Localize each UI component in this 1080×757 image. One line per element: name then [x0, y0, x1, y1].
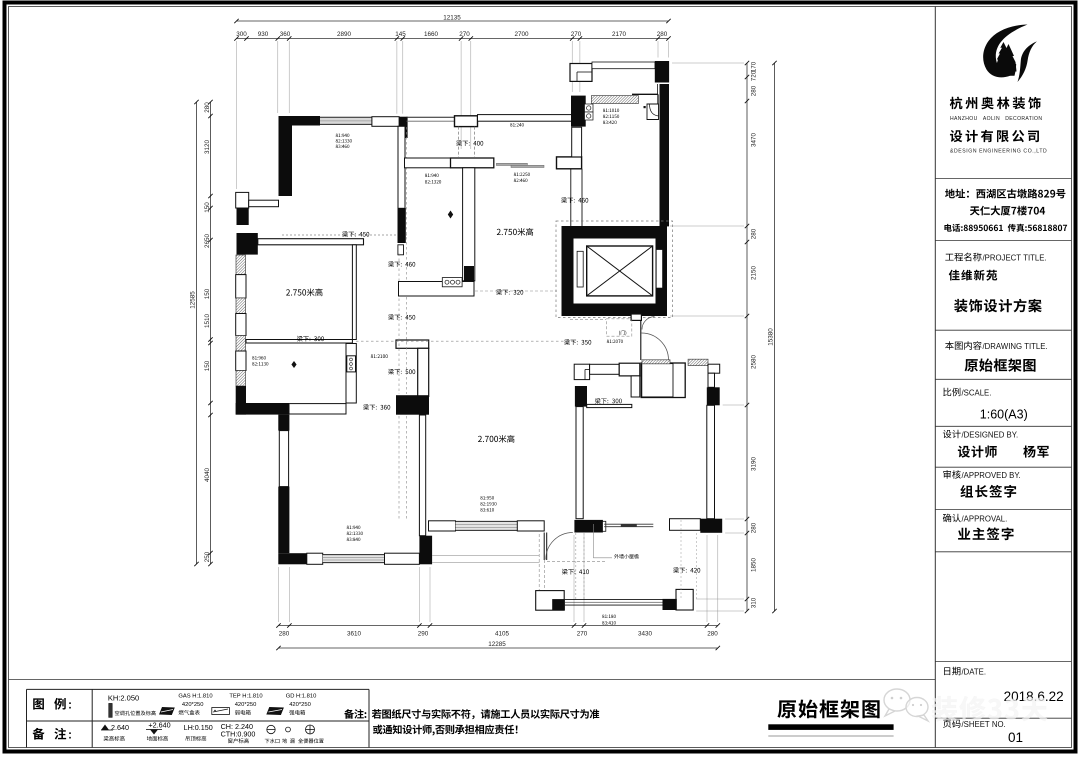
svg-text:280: 280: [707, 631, 718, 638]
svg-text:2700: 2700: [514, 31, 529, 38]
svg-text:270: 270: [571, 31, 582, 38]
svg-text:/APPROVED BY.: /APPROVED BY.: [962, 471, 1021, 480]
svg-text:3470: 3470: [751, 133, 758, 148]
svg-text:GD H:1.810: GD H:1.810: [286, 693, 317, 699]
svg-text:420*250: 420*250: [182, 702, 204, 708]
svg-text:2150: 2150: [751, 266, 758, 281]
svg-text:360: 360: [280, 31, 291, 38]
svg-text:12285: 12285: [488, 641, 506, 648]
svg-text:280: 280: [751, 85, 758, 96]
svg-text:/PROJECT TITLE.: /PROJECT TITLE.: [983, 254, 1047, 263]
svg-text:150: 150: [204, 202, 211, 213]
svg-text::: :: [68, 698, 72, 712]
svg-text:150: 150: [204, 360, 211, 371]
svg-text:1510: 1510: [204, 314, 211, 329]
svg-text:3430: 3430: [638, 631, 653, 638]
svg-text:170: 170: [751, 61, 758, 72]
svg-text:280: 280: [204, 102, 211, 113]
svg-text:&DESIGN ENGINEERING CO.,LTD: &DESIGN ENGINEERING CO.,LTD: [950, 149, 1047, 155]
svg-text:930: 930: [258, 31, 269, 38]
svg-text:150: 150: [204, 288, 211, 299]
svg-text:12585: 12585: [190, 291, 197, 309]
svg-text:280: 280: [657, 31, 668, 38]
svg-text:/DATE.: /DATE.: [962, 668, 987, 677]
svg-text:2170: 2170: [612, 31, 627, 38]
svg-text:1850: 1850: [751, 558, 758, 573]
svg-text:145: 145: [395, 31, 406, 38]
svg-text:1:60(A3): 1:60(A3): [980, 408, 1028, 422]
svg-text:290: 290: [418, 631, 429, 638]
svg-text:CTH:0.900: CTH:0.900: [221, 730, 256, 739]
svg-text:270: 270: [577, 631, 588, 638]
svg-text:LH:0.150: LH:0.150: [184, 723, 213, 732]
svg-text:/SHEET NO.: /SHEET NO.: [962, 720, 1006, 729]
svg-text:01: 01: [1008, 730, 1023, 745]
svg-text:2.640: 2.640: [111, 723, 129, 732]
svg-text:720: 720: [751, 70, 758, 81]
svg-text:TEP H:1.810: TEP H:1.810: [229, 693, 262, 699]
svg-text:280: 280: [751, 522, 758, 533]
svg-text:310: 310: [751, 597, 758, 608]
svg-text:250: 250: [204, 551, 211, 562]
svg-text:/DESIGNED BY.: /DESIGNED BY.: [962, 431, 1019, 440]
svg-text:2890: 2890: [337, 31, 352, 38]
svg-text:420*250: 420*250: [289, 702, 311, 708]
svg-text:/SCALE.: /SCALE.: [962, 389, 992, 398]
svg-text:270: 270: [459, 31, 470, 38]
svg-text:+2.640: +2.640: [148, 721, 170, 730]
svg-text:KH:2.050: KH:2.050: [108, 694, 139, 703]
svg-text:GAS H:1.810: GAS H:1.810: [178, 693, 212, 699]
svg-text:3610: 3610: [347, 631, 362, 638]
svg-text:12135: 12135: [443, 15, 461, 22]
svg-text:2650: 2650: [204, 234, 211, 249]
svg-text:2580: 2580: [751, 355, 758, 370]
svg-text:/DRAWING TITLE.: /DRAWING TITLE.: [983, 342, 1048, 351]
svg-text:15380: 15380: [768, 328, 775, 346]
svg-text:280: 280: [751, 228, 758, 239]
svg-text::: :: [68, 728, 72, 742]
svg-text:1660: 1660: [424, 31, 439, 38]
svg-text:420*250: 420*250: [235, 702, 257, 708]
svg-text:3120: 3120: [204, 140, 211, 155]
svg-text:300: 300: [236, 31, 247, 38]
svg-text:4040: 4040: [204, 468, 211, 483]
svg-text:3190: 3190: [751, 457, 758, 472]
svg-text:/APPROVAL.: /APPROVAL.: [962, 515, 1008, 524]
svg-text:280: 280: [279, 631, 290, 638]
svg-text:4105: 4105: [495, 631, 510, 638]
svg-text:HANZHOU AOLIN DECORATION: HANZHOU AOLIN DECORATION: [950, 116, 1042, 122]
